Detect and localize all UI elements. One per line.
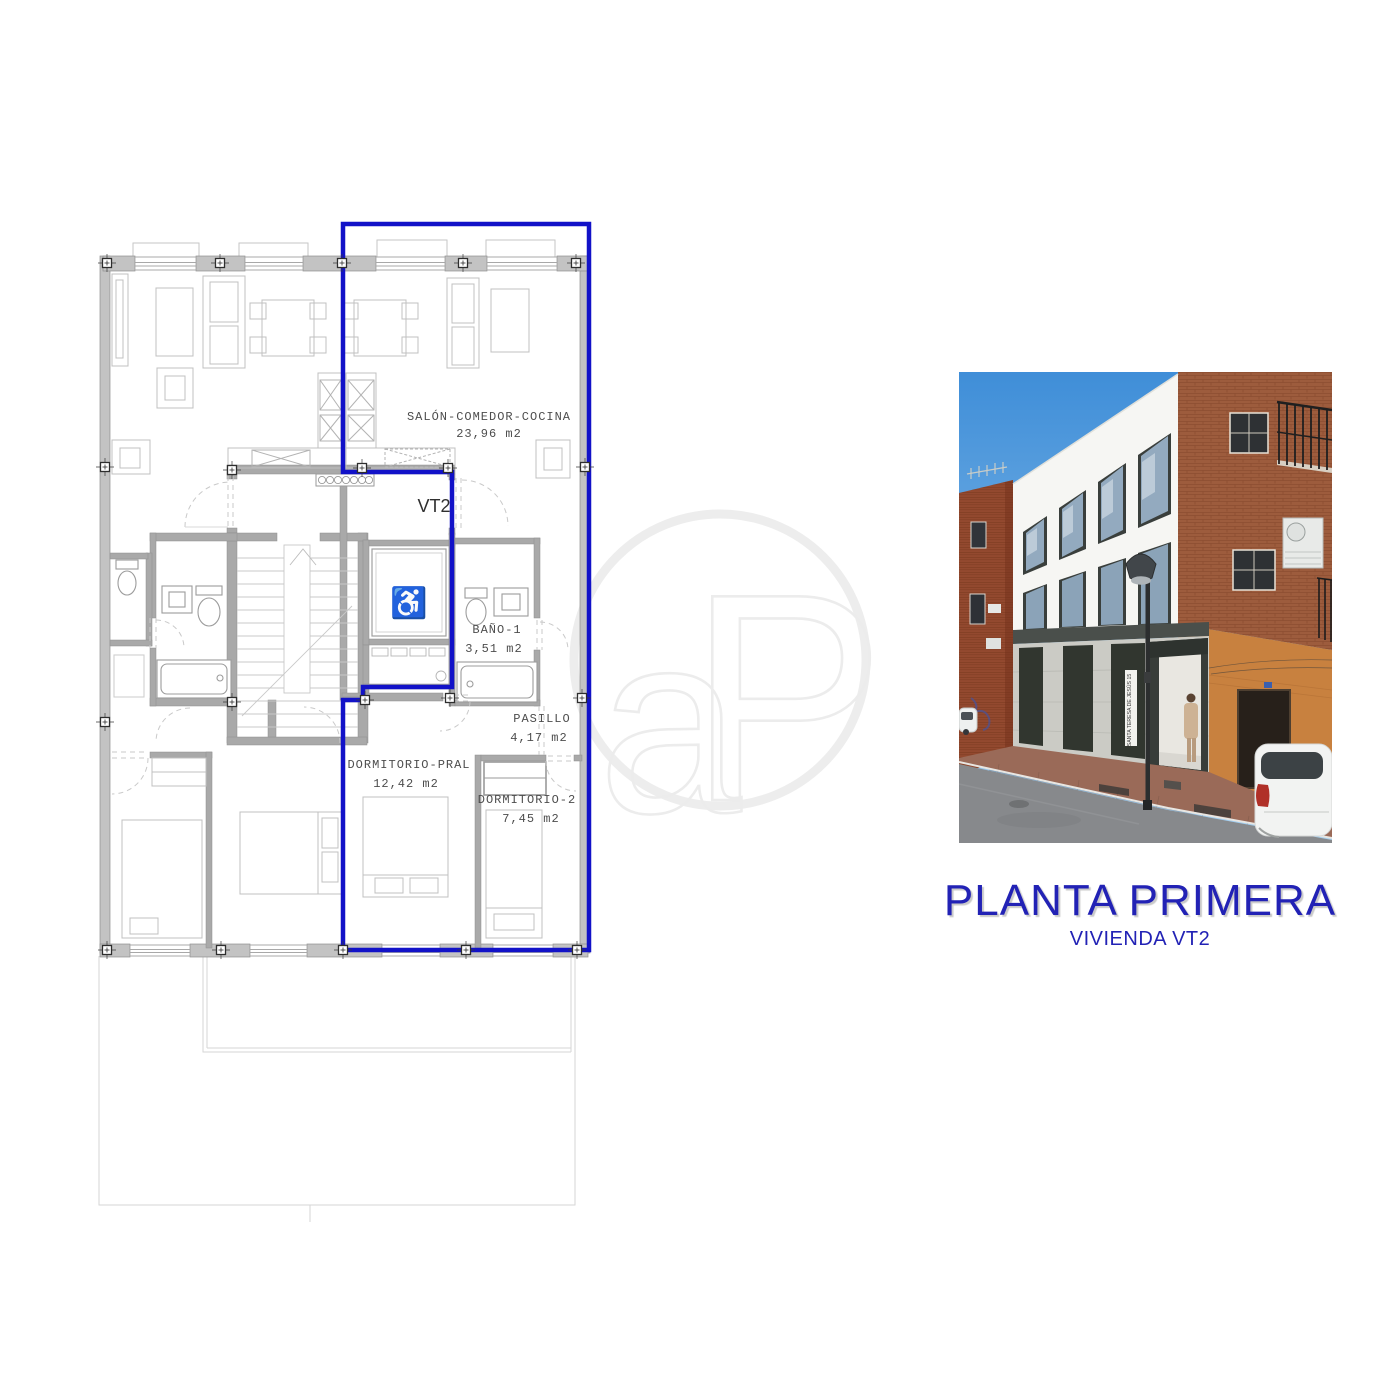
radiator-strip [316, 474, 374, 486]
caption-title: PLANTA PRIMERA [930, 878, 1350, 924]
label-dorm2-area: 7,45 m2 [502, 812, 559, 826]
label-dormpral: DORMITORIO-PRAL [347, 758, 470, 772]
label-pasillo-area: 4,17 m2 [510, 731, 567, 745]
white-car [1255, 744, 1332, 837]
caption-subtitle: VIVIENDA VT2 [930, 928, 1350, 951]
wheelchair-icon: ♿ [390, 585, 427, 620]
caption-block: PLANTA PRIMERA VIVIENDA VT2 [930, 878, 1350, 951]
label-unit: VT2 [417, 496, 450, 516]
lot-outline [99, 956, 575, 1222]
label-bano1: BAÑO-1 [472, 622, 521, 637]
label-salon: SALÓN-COMEDOR-COCINA [407, 409, 571, 424]
left-building [959, 462, 1013, 774]
label-pasillo: PASILLO [513, 712, 570, 726]
wc-left [114, 560, 144, 697]
building-photo: SANTA TERESA DE JESÚS 15 [959, 372, 1332, 843]
label-salon-area: 23,96 m2 [456, 427, 522, 441]
watermark-letter-p: P [688, 532, 885, 835]
bathroom-neighbour [157, 586, 231, 698]
flyer-page: a P [0, 0, 1400, 1400]
street-sign: SANTA TERESA DE JESÚS 15 [1126, 674, 1133, 747]
label-dormpral-area: 12,42 m2 [373, 777, 439, 791]
label-dorm2: DORMITORIO-2 [478, 793, 576, 807]
floor-plan: ♿ [90, 210, 605, 1225]
elevator: ♿ [372, 549, 446, 681]
label-bano1-area: 3,51 m2 [465, 642, 522, 656]
partitions [110, 465, 582, 948]
